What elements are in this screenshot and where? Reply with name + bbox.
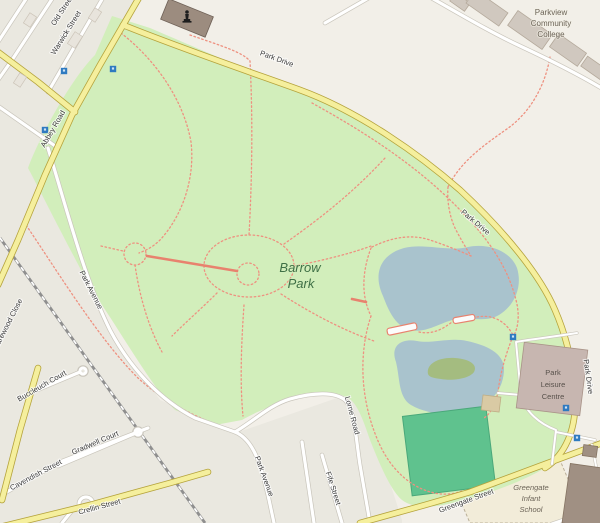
college-label-line3: College <box>537 30 565 39</box>
map-svg: Old Street Warwick Street Abbey Road Par… <box>0 0 600 523</box>
sports-pitch <box>402 406 495 496</box>
school-label-line1: Greengate <box>513 483 548 492</box>
small-dark-building <box>582 445 597 458</box>
park-name-line1: Barrow <box>279 260 322 275</box>
school-label-line3: School <box>520 505 543 514</box>
leisure-centre-building <box>516 342 588 415</box>
college-label-line1: Parkview <box>535 8 568 17</box>
small-building <box>481 395 501 412</box>
map-marker-icon <box>61 68 67 74</box>
school-label-line2: Infant <box>522 494 542 503</box>
map-marker-icon <box>110 66 116 72</box>
leisure-label-line2: Leisure <box>541 380 566 389</box>
park-name-line2: Park <box>288 276 316 291</box>
map-canvas[interactable]: Old Street Warwick Street Abbey Road Par… <box>0 0 600 523</box>
leisure-label-line3: Centre <box>542 392 565 401</box>
college-label-line2: Community <box>531 19 571 28</box>
map-marker-icon <box>563 405 569 411</box>
leisure-label-line1: Park <box>545 368 561 377</box>
map-marker-icon <box>574 435 580 441</box>
map-marker-icon <box>510 334 516 340</box>
